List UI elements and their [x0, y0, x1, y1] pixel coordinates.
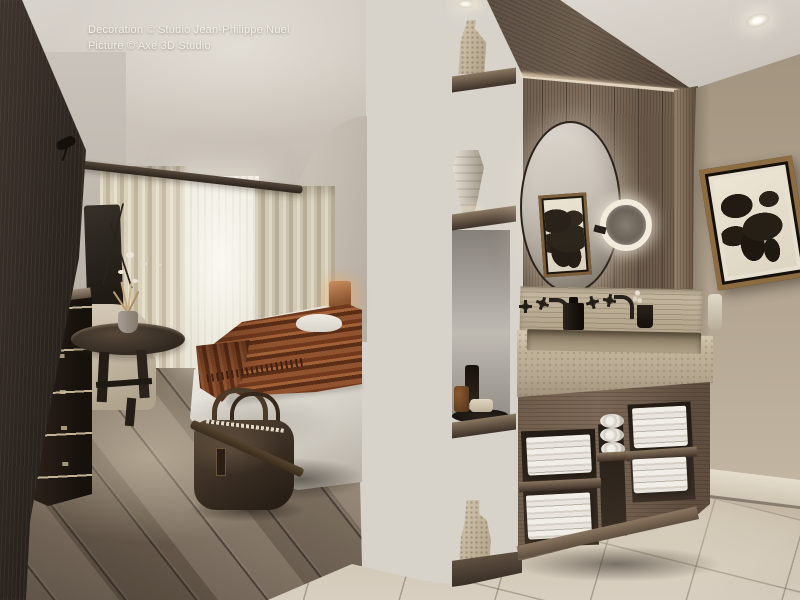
shelf-light	[462, 0, 488, 10]
room-divider	[352, 0, 454, 585]
magnifying-mirror	[600, 199, 652, 251]
orchid-branch	[102, 203, 124, 285]
mirror-reflected-art	[538, 192, 592, 277]
credit-line-decoration: Decoration © Studio Jean-Philippe Nuel	[88, 22, 290, 38]
towel-roll	[600, 414, 624, 428]
white-sprig	[633, 290, 642, 305]
amber-bottle	[454, 386, 469, 412]
cubby-shelf	[597, 451, 628, 462]
hotel-room-rendering: Decoration © Studio Jean-Philippe Nuel P…	[0, 0, 800, 600]
wall-art-print	[713, 169, 797, 277]
towel-roll	[600, 428, 624, 442]
mirror-art-print	[544, 198, 587, 272]
duffel-buckle	[216, 448, 226, 476]
tumbler	[637, 305, 653, 328]
towel-stack	[632, 406, 688, 449]
dried-grass	[118, 281, 138, 313]
towel-stack	[526, 434, 592, 475]
wall-art-frame	[699, 155, 800, 290]
grass-vase	[118, 311, 138, 333]
faucet-handle	[519, 300, 532, 313]
bed-pillow	[296, 314, 342, 332]
table-lamp	[329, 281, 351, 308]
faucet-spout	[614, 295, 634, 319]
counter-vase	[708, 294, 722, 330]
credit-line-picture: Picture © Axe 3D Studio	[88, 38, 290, 54]
credit-text: Decoration © Studio Jean-Philippe Nuel P…	[88, 22, 290, 54]
sink-basin	[527, 329, 701, 354]
soap-dispenser	[563, 303, 584, 330]
soap-bar	[470, 399, 493, 412]
towel-stack	[632, 457, 688, 494]
textured-vase	[455, 20, 489, 74]
orchid-blossoms	[126, 252, 134, 258]
divider-shelf-niches	[452, 0, 525, 588]
